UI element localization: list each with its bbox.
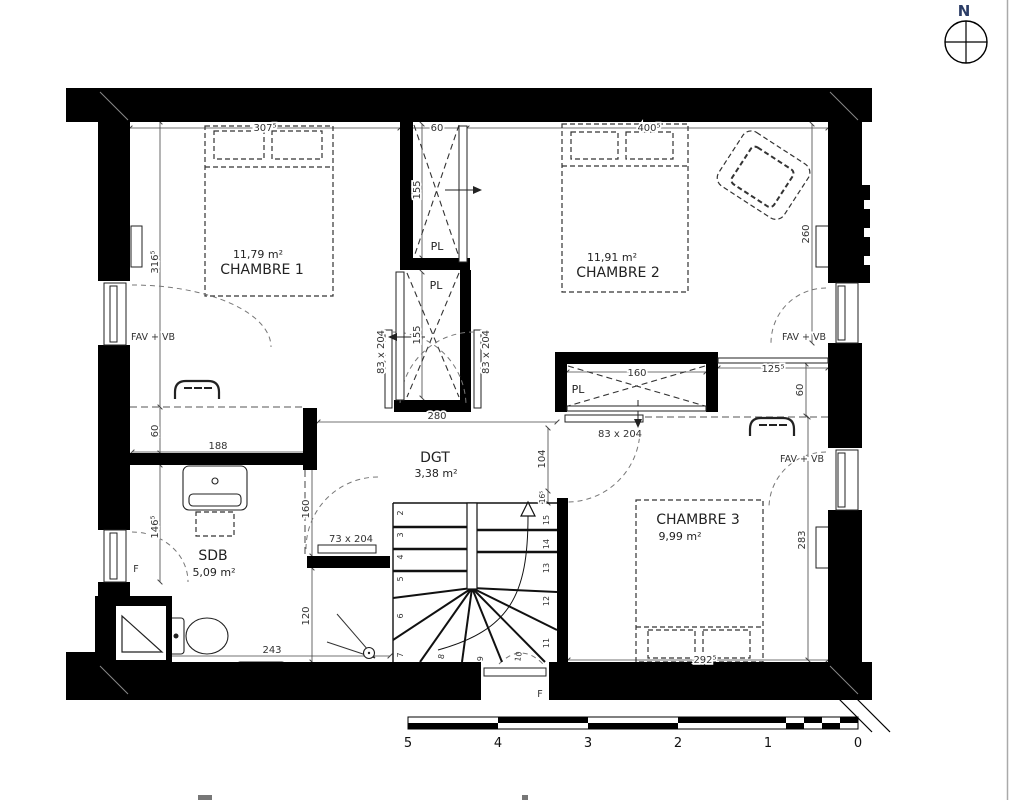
radiator-icon	[175, 381, 219, 399]
dim-ch2-height: 260	[801, 224, 812, 243]
dim-sdb-window: 146⁵	[150, 515, 161, 538]
toilet-icon	[169, 618, 228, 654]
step-number: 11	[542, 638, 551, 648]
room-name-sdb: SDB	[198, 548, 227, 564]
dim-ch3-corridor: 125⁵	[761, 364, 784, 375]
window-label-f-bottom: F	[537, 689, 542, 700]
window-label-right2: FAV + VB	[780, 454, 824, 465]
dim-pl-top-depth: 155	[412, 180, 423, 199]
step-number: 9	[476, 656, 485, 662]
dim-ch3-height: 283	[797, 530, 808, 549]
stair-spine	[467, 503, 477, 589]
dim-door-left: 83 x 204	[376, 330, 387, 374]
scale-number: 2	[674, 736, 682, 751]
radiator-panel	[816, 527, 829, 568]
floor-plan-page: 2 3 4 5 6 7 8 9 10 11 12 13 14 15 11,79 …	[0, 0, 1011, 800]
room-name-chambre3: CHAMBRE 3	[656, 512, 740, 528]
step-number: 13	[542, 563, 551, 573]
step-number: 12	[542, 596, 551, 606]
closet-label-bottom: PL	[430, 279, 444, 292]
dim-ch2-width: 400⁵	[637, 123, 660, 134]
doors	[306, 126, 706, 553]
window-label-left: FAV + VB	[131, 332, 175, 343]
room-area-chambre3: 9,99 m²	[658, 530, 701, 543]
scale-bar-numbers: 5 4 3 2 1 0	[404, 736, 862, 751]
dim-ch1-height: 316⁵	[150, 250, 161, 273]
floor-drain-icon	[327, 614, 375, 659]
scale-number: 1	[764, 736, 772, 751]
room-area-chambre2: 11,91 m²	[587, 251, 637, 264]
armchair-icon	[713, 127, 813, 223]
room-area-dgt: 3,38 m²	[414, 467, 457, 480]
radiator-panel	[131, 226, 142, 267]
cropped-text-fragment	[198, 795, 212, 800]
step-number: 8	[437, 653, 447, 660]
step-number: 14	[542, 539, 551, 549]
closet-label-right: PL	[572, 383, 586, 396]
window-label-right1: FAV + VB	[782, 332, 826, 343]
dim-ch3-width: 292⁵	[693, 655, 716, 666]
room-name-chambre2: CHAMBRE 2	[576, 265, 660, 281]
step-number: 10	[513, 651, 524, 663]
room-area-chambre1: 11,79 m²	[233, 248, 283, 261]
compass-north-label: N	[958, 2, 971, 20]
radiator-icon	[750, 418, 794, 436]
dim-ch1-width: 307⁵	[253, 123, 276, 134]
room-area-sdb: 5,09 m²	[192, 566, 235, 579]
scale-number: 4	[494, 736, 502, 751]
dim-left-offset: 60	[150, 425, 161, 438]
room-name-chambre1: CHAMBRE 1	[220, 262, 304, 278]
cropped-text-fragment	[522, 795, 528, 800]
closet-door-right-track	[567, 406, 706, 411]
dim-stair-small: 16⁵	[538, 491, 547, 504]
dim-sdb-wall: 188	[208, 441, 227, 452]
step-number: 4	[396, 554, 405, 559]
scale-number: 3	[584, 736, 592, 751]
step-number: 5	[396, 576, 405, 581]
dim-dgt-width: 280	[427, 411, 446, 422]
window-left-favvb	[104, 283, 271, 347]
closet-label-top: PL	[431, 240, 445, 253]
dim-door-right: 83 x 204	[481, 330, 492, 374]
dim-ch3-offset: 60	[795, 384, 806, 397]
radiator-panel	[816, 226, 829, 267]
dim-pl-right-width: 160	[627, 368, 646, 379]
dim-pl-bottom-depth: 155	[412, 325, 423, 344]
scale-number: 5	[404, 736, 412, 751]
dim-stair-offset: 104	[537, 449, 548, 468]
dim-door-sdb: 73 x 204	[329, 534, 373, 545]
stair-direction-arrow	[521, 502, 535, 516]
scale-bar: 5 4 3 2 1 0	[404, 717, 862, 751]
step-number: 3	[396, 532, 405, 537]
dim-sdb-low: 120	[301, 606, 312, 625]
dim-door-ch3: 83 x 204	[598, 429, 642, 440]
dim-sdb-mid: 160	[301, 499, 312, 518]
sink-icon	[183, 466, 247, 536]
step-number: 15	[542, 515, 551, 525]
room-name-dgt: DGT	[420, 450, 450, 466]
staircase: 2 3 4 5 6 7 8 9 10 11 12 13 14 15	[393, 502, 557, 662]
floor-plan-svg: 2 3 4 5 6 7 8 9 10 11 12 13 14 15 11,79 …	[0, 0, 1011, 800]
compass-icon: N	[945, 2, 987, 63]
window-label-f-left: F	[133, 564, 138, 575]
step-number: 7	[396, 652, 405, 657]
step-number: 2	[396, 510, 405, 515]
scale-number: 0	[854, 736, 862, 751]
dim-pl-width: 60	[431, 123, 444, 134]
dim-sdb-width: 243	[262, 645, 281, 656]
door-chambre3	[565, 400, 643, 502]
step-number: 6	[396, 613, 405, 618]
window-left-f	[104, 530, 188, 582]
scale-bar-segments	[408, 717, 858, 729]
closet-door-top	[445, 126, 482, 262]
